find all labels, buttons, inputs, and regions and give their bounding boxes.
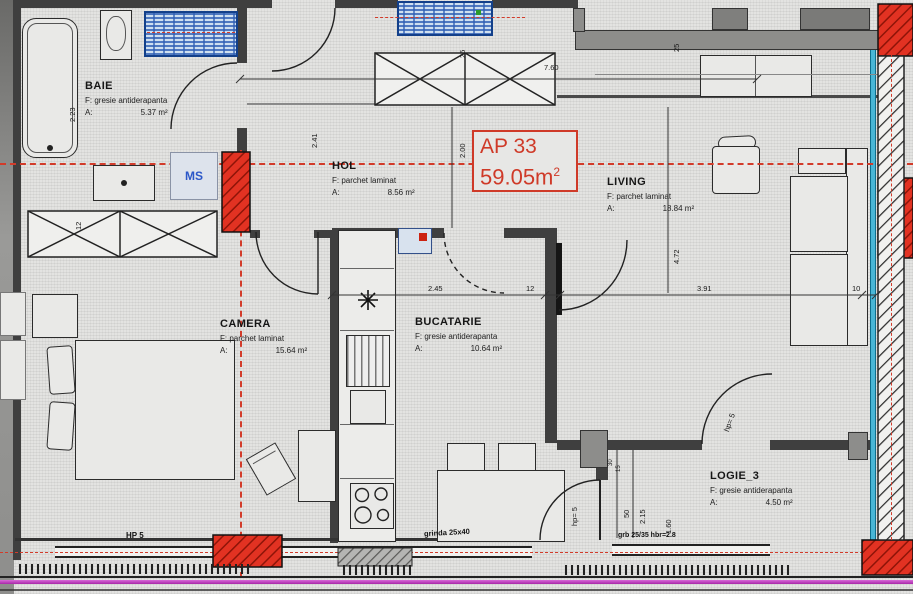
dim-2-41: 2.41 — [310, 133, 319, 148]
dim-2-45: 2.45 — [428, 284, 443, 293]
wall-top-hall-b — [335, 0, 398, 8]
sofa-back — [846, 148, 868, 346]
apartment-title-box: AP 33 59.05m2 — [472, 130, 578, 192]
apartment-number: AP 33 — [480, 135, 570, 159]
column-top-right — [878, 4, 913, 56]
pillow-1 — [46, 345, 75, 395]
bathtub — [22, 18, 78, 158]
axis-bottom-facade — [0, 552, 878, 553]
pillow-2 — [46, 401, 75, 451]
fridge — [346, 335, 390, 387]
xwall-wardrobe — [28, 211, 217, 257]
axis-horizontal-main — [0, 163, 913, 165]
ms-box: MS — [170, 152, 218, 200]
counter-cabinet — [350, 390, 386, 424]
dim-3-91: 3.91 — [697, 284, 712, 293]
door-arc-bath — [171, 63, 237, 129]
camera-dresser — [32, 294, 78, 338]
note-beam-loggia: grb 25/35 hbr=2.8 — [618, 532, 676, 539]
wall-top-hall-a — [237, 0, 272, 8]
dim-2-23: 2.23 — [68, 107, 77, 122]
facade-window-line — [870, 50, 876, 560]
counter-divider-1 — [340, 268, 394, 269]
dim-50: 50 — [622, 510, 631, 518]
note-hp5-living-door: hp= 5 — [722, 412, 737, 433]
axis-washer — [147, 32, 235, 33]
room-name: LIVING — [607, 176, 694, 188]
counter-divider-4 — [340, 478, 394, 479]
wall-left-outer — [13, 0, 21, 560]
armchair — [712, 146, 760, 194]
insulation-comb-1 — [18, 564, 253, 574]
stove — [350, 483, 394, 529]
axis-vertical-left — [240, 150, 242, 578]
dim-12: 12 — [526, 284, 534, 293]
wall-loggia-top-b — [608, 440, 702, 450]
desk-chair — [246, 442, 296, 495]
counter-divider-2 — [340, 330, 394, 331]
wall-loggia-top-a — [557, 440, 582, 450]
kitchen-chair-2 — [498, 443, 536, 471]
wall-top-right — [492, 0, 578, 8]
kitchen-sink-tap — [419, 233, 427, 241]
axis-shaft — [375, 17, 525, 18]
bathtub-inner — [27, 23, 73, 153]
room-label-camera: CAMERA F: parchet laminat A:15.64 m² — [220, 318, 307, 355]
sofa-seat-1 — [790, 176, 848, 252]
sofa-armrest — [798, 148, 846, 174]
ventilation-shaft — [398, 2, 492, 35]
dim-25-top: 25 — [458, 50, 467, 58]
wall-kitchen-top-b — [504, 228, 547, 238]
room-label-logie: LOGIE_3 F: gresie antiderapanta A:4.50 m… — [710, 470, 793, 507]
floor-plan: AP 33 59.05m2 MS BAIE F: gresie antidera… — [0, 0, 913, 594]
door-arc-entrance — [272, 8, 335, 71]
room-name: HOL — [332, 160, 415, 172]
tv-cabinet — [700, 55, 812, 97]
room-name: BAIE — [85, 80, 168, 92]
window-loggia-parapet — [612, 544, 770, 556]
ms-label: MS — [185, 169, 203, 183]
xwall-entrance — [375, 53, 555, 105]
dim-4-72: 4.72 — [672, 249, 681, 264]
note-hp5-window: HP 5 — [126, 531, 144, 540]
wall-camera-top-a — [250, 230, 260, 238]
bath-sink — [100, 10, 132, 60]
sofa-seat-2 — [790, 254, 848, 346]
dim-10: 10 — [852, 284, 860, 293]
door-arc-living-loggia — [702, 374, 772, 444]
living-door-leaf — [556, 243, 562, 315]
bath-sink-bowl — [106, 16, 126, 51]
dim-30: 30 — [608, 459, 614, 466]
insulation-comb-3 — [565, 565, 793, 575]
desk-chair-line — [253, 450, 276, 464]
dim-12-wardrobe: 12 — [74, 222, 83, 230]
counter-divider-3 — [340, 424, 394, 425]
dim-15: 15 — [616, 465, 622, 472]
desk — [298, 430, 336, 502]
door-arc-kitchen — [444, 233, 504, 293]
kitchen-chair-1 — [447, 443, 485, 471]
room-name: BUCATARIE — [415, 316, 502, 328]
insulation-comb-2 — [340, 565, 415, 575]
wall-top-bath — [15, 0, 237, 8]
dim-2-15: 2.15 — [638, 509, 647, 524]
dim-7-60: 7.60 — [544, 63, 559, 72]
column-right-mid — [878, 178, 913, 258]
room-label-hol: HOL F: parchet laminat A:8.56 m² — [332, 160, 415, 197]
room-label-living: LIVING F: parchet laminat A:18.84 m² — [607, 176, 694, 213]
line-hall-upper — [247, 103, 375, 105]
note-hp5-kitchen-door: hp= 5 — [570, 507, 579, 526]
door-arc-camera — [256, 232, 318, 294]
room-label-baie: BAIE F: gresie antiderapanta A:5.37 m² — [85, 80, 168, 117]
room-label-bucatarie: BUCATARIE F: gresie antiderapanta A:10.6… — [415, 316, 502, 353]
room-name: LOGIE_3 — [710, 470, 793, 482]
pier-top-right — [800, 8, 870, 30]
neighbor-fixture-2 — [0, 340, 26, 400]
door-arc-living — [559, 240, 627, 310]
axis-right-facade — [891, 54, 892, 540]
dim-2-00: 2.00 — [458, 143, 467, 158]
pier-living-top-band — [575, 30, 883, 50]
apartment-area: 59.05m2 — [480, 159, 570, 190]
kitchen-sink — [398, 228, 432, 254]
tv-cabinet-divider — [755, 56, 756, 96]
wall-bath-hall-lower — [237, 128, 247, 156]
shaft-marker — [476, 10, 481, 15]
wall-bath-hall-upper — [237, 8, 247, 63]
bath-cabinet — [93, 165, 155, 201]
pier-top-step — [573, 8, 585, 32]
living-shelf-line-1 — [595, 74, 881, 75]
pier-top-center — [712, 8, 748, 30]
washing-machine — [145, 12, 237, 56]
neighbor-fixture-1 — [0, 292, 26, 336]
room-name: CAMERA — [220, 318, 307, 330]
dim-25-living: 25 — [672, 44, 681, 52]
pier-kitchen-loggia — [580, 430, 608, 468]
pier-loggia-right — [848, 432, 868, 460]
bed — [75, 340, 235, 480]
section-line-magenta — [0, 580, 913, 584]
